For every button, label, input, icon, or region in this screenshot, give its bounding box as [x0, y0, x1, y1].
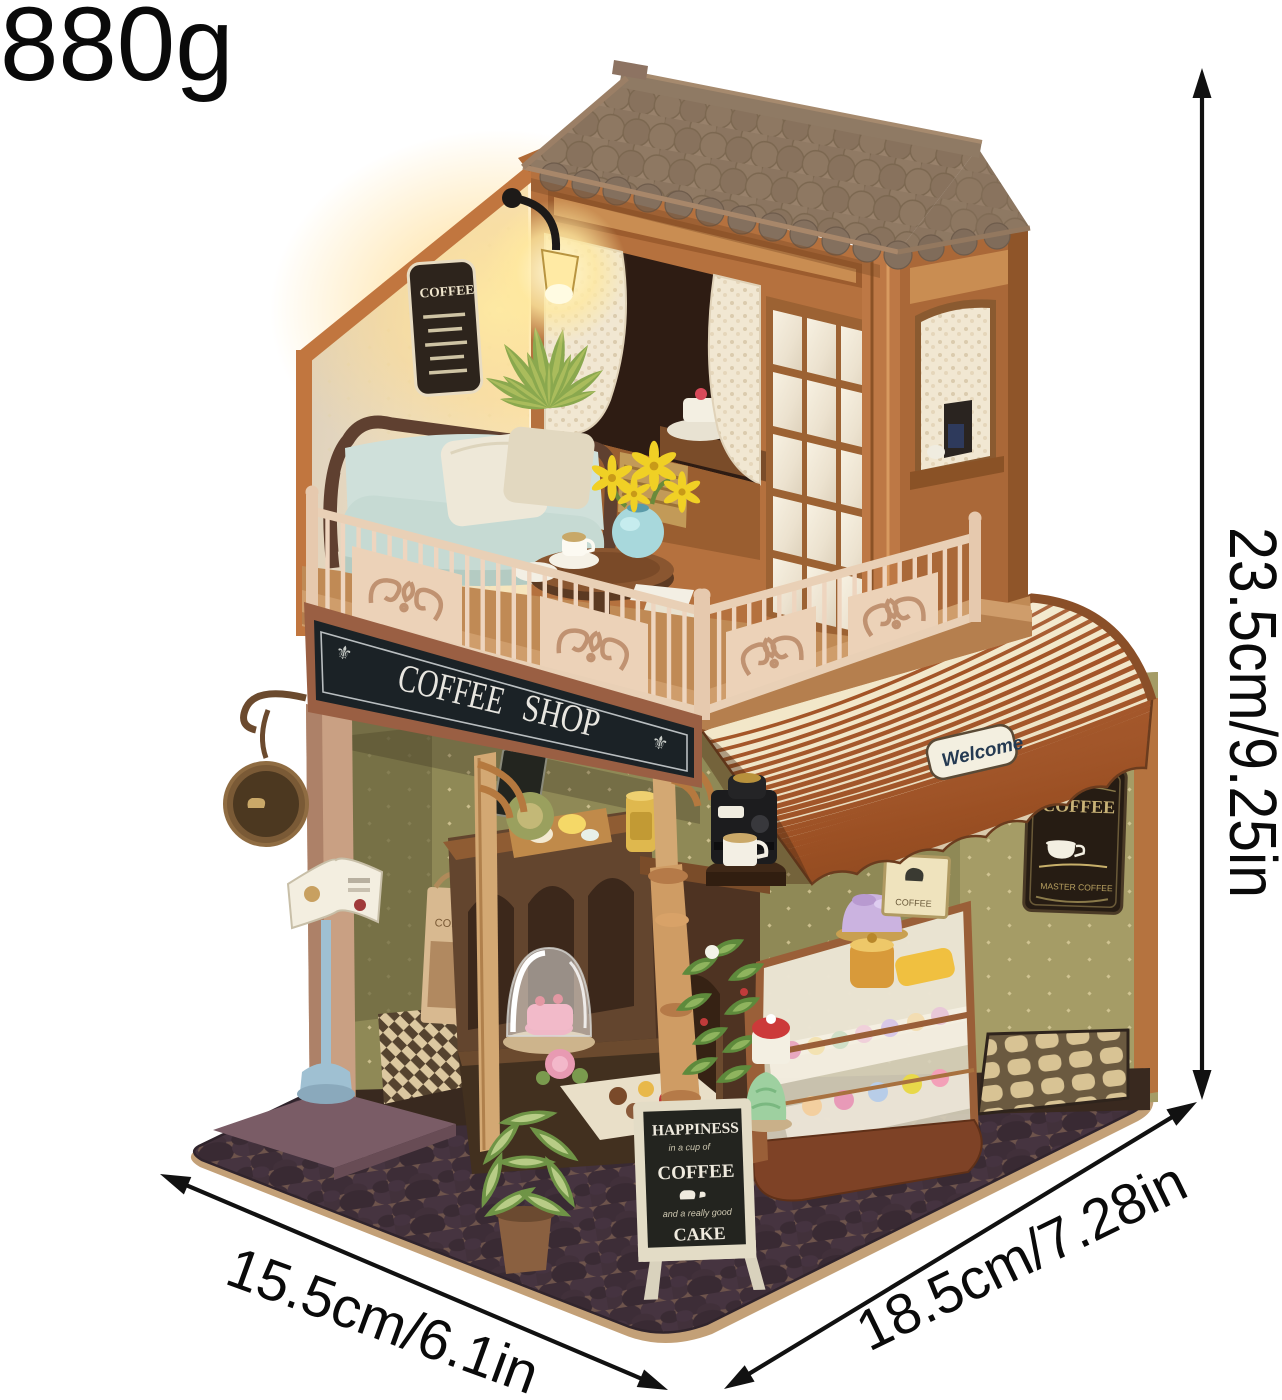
svg-text:COFFEE: COFFEE	[895, 897, 932, 909]
svg-text:COFFEE: COFFEE	[657, 1161, 735, 1185]
svg-text:CAKE: CAKE	[673, 1223, 726, 1245]
svg-text:23.5cm/9.25in: 23.5cm/9.25in	[1215, 527, 1282, 898]
svg-text:880g: 880g	[0, 0, 234, 103]
svg-text:HAPPINESS: HAPPINESS	[652, 1119, 740, 1139]
svg-text:in a cup of: in a cup of	[668, 1141, 711, 1152]
